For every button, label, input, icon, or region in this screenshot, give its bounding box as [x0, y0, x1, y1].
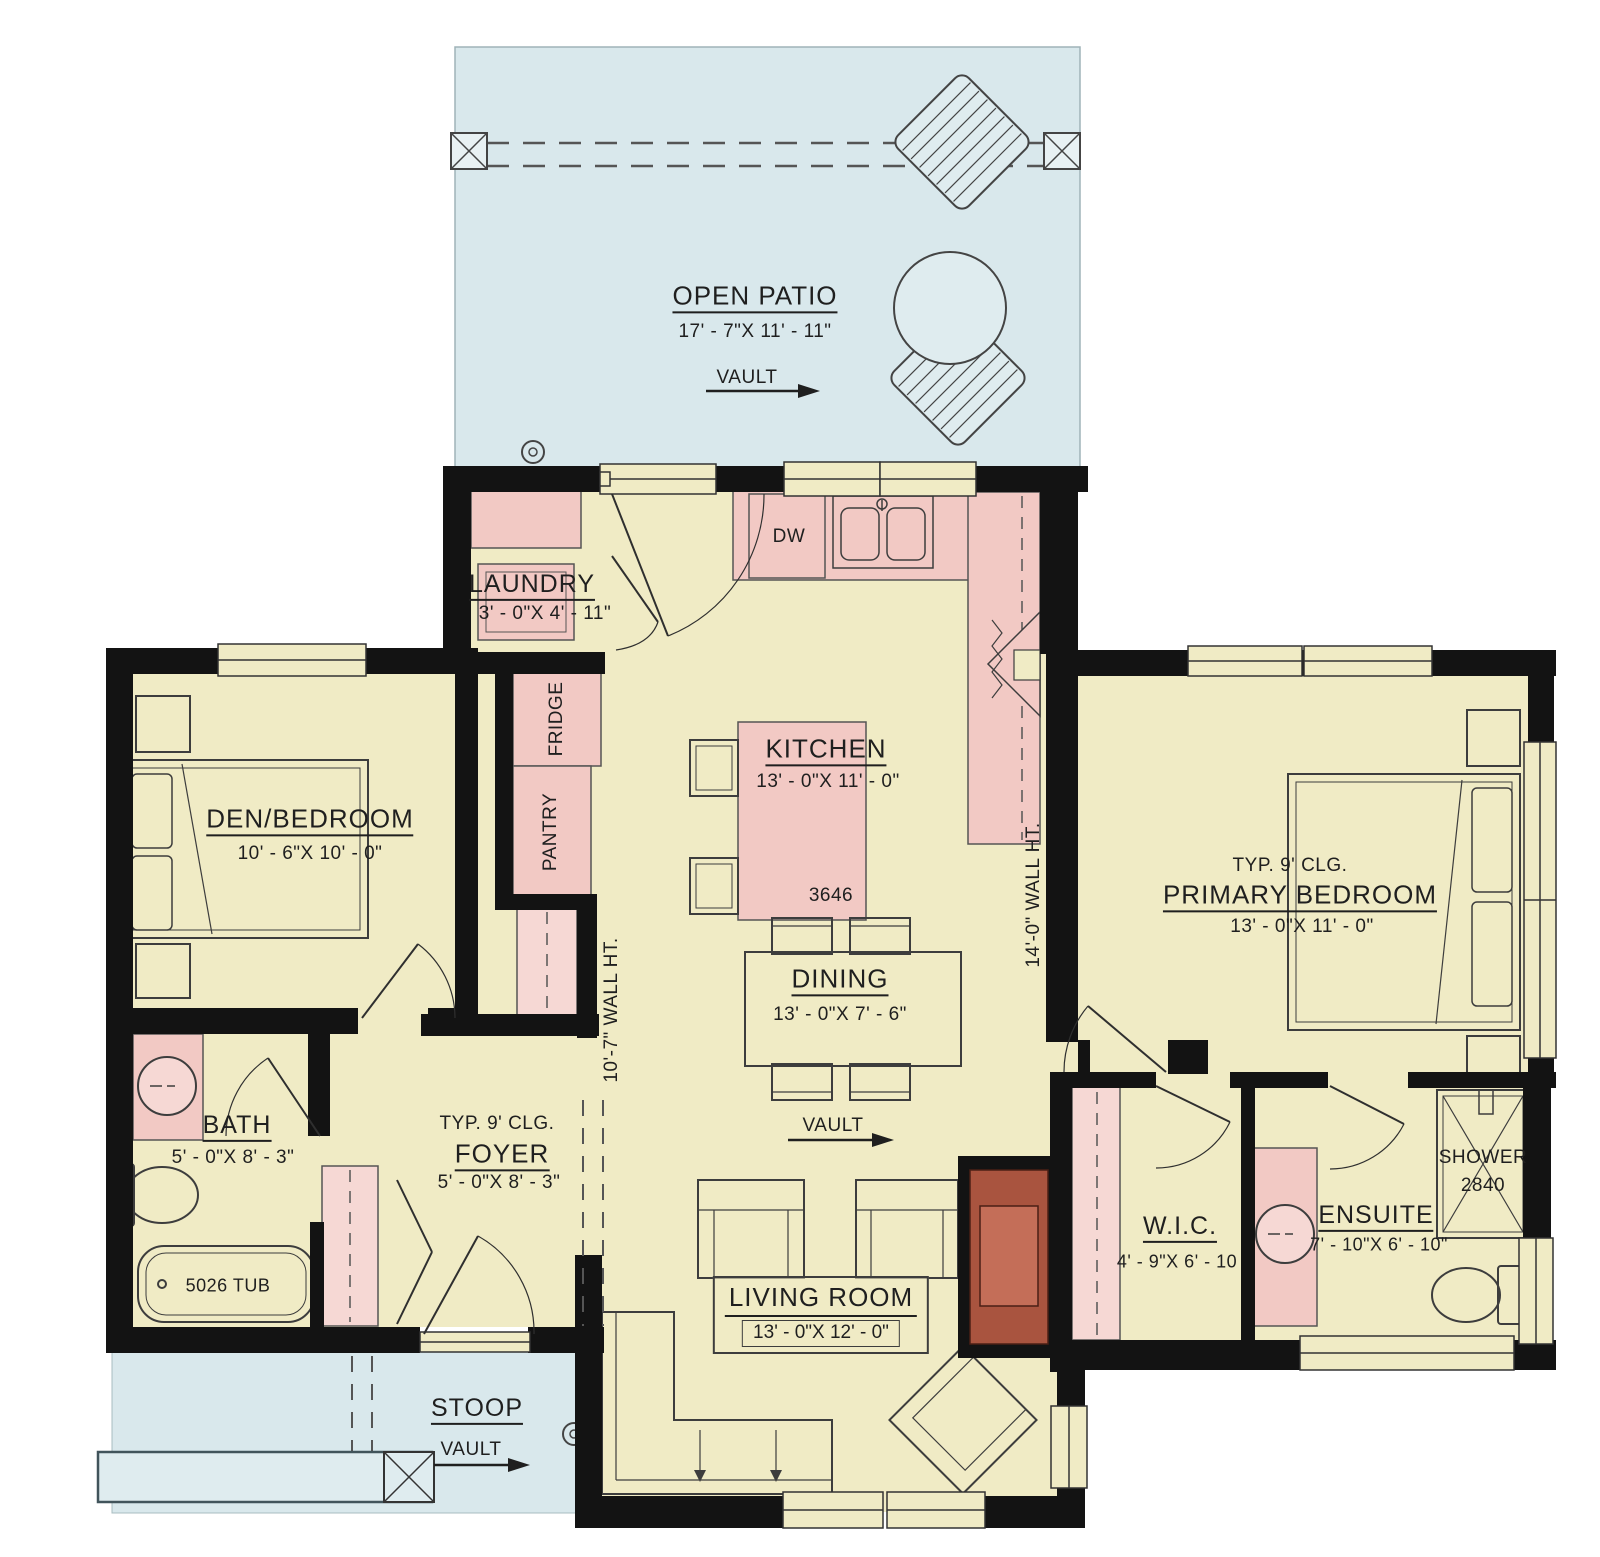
ensuite-vanity — [1253, 1148, 1317, 1326]
kitchen-title: KITCHEN — [765, 735, 886, 766]
foyer-ceiling: TYP. 9' CLG. — [440, 1114, 555, 1134]
wall-height-right: 14'-0" WALL HT. — [1024, 822, 1044, 967]
bath-title: BATH — [203, 1112, 272, 1142]
primary-dims: 13' - 0"X 11' - 0" — [1230, 917, 1373, 937]
window-icon — [783, 1492, 883, 1528]
ensuite-title: ENSUITE — [1318, 1202, 1433, 1232]
primary-title: PRIMARY BEDROOM — [1163, 881, 1437, 912]
stoop-title: STOOP — [431, 1395, 523, 1425]
patio-table-icon — [894, 252, 1006, 364]
living-dims: 13' - 0"X 12' - 0" — [742, 1320, 900, 1347]
stoop-beam — [98, 1452, 432, 1502]
den-title: DEN/BEDROOM — [206, 805, 413, 836]
stoop-area — [98, 1349, 585, 1513]
window-icon — [784, 462, 880, 496]
laundry-dims: 3' - 0"X 4' - 11" — [479, 604, 611, 624]
window-icon — [887, 1492, 985, 1528]
patio-post-right-icon — [1044, 133, 1080, 169]
window-icon — [1300, 1336, 1514, 1370]
wic-closet — [1072, 1087, 1120, 1340]
kitchen-dims: 13' - 0"X 11' - 0" — [756, 772, 899, 792]
living-title: LIVING ROOM — [725, 1282, 917, 1317]
primary-ceiling: TYP. 9' CLG. — [1233, 856, 1348, 876]
bath-vanity — [133, 1034, 203, 1140]
hall-closet — [517, 908, 577, 1020]
den-dims: 10' - 6"X 10' - 0" — [238, 844, 383, 864]
fireplace-icon — [958, 1156, 1058, 1358]
door-sill — [420, 1332, 530, 1352]
stoop-vault: VAULT — [441, 1440, 502, 1460]
window-icon — [1051, 1406, 1087, 1488]
wic-dims: 4' - 9"X 6' - 10 — [1117, 1253, 1237, 1272]
pantry-label: PANTRY — [541, 793, 561, 871]
patio-dims: 17' - 7"X 11' - 11" — [678, 322, 831, 342]
foyer-closet — [322, 1166, 378, 1326]
dining-dims: 13' - 0"X 7' - 6" — [773, 1005, 907, 1025]
stoop-post-icon — [384, 1452, 434, 1502]
living-room-label-box: LIVING ROOM 13' - 0"X 12' - 0" — [713, 1276, 929, 1354]
fridge-label: FRIDGE — [547, 682, 567, 757]
window-icon — [1519, 1238, 1553, 1344]
laundry-counter — [471, 490, 581, 548]
window-icon — [1188, 646, 1302, 676]
laundry-title: LAUNDRY — [469, 571, 595, 601]
patio-title: OPEN PATIO — [672, 282, 837, 313]
patio-vault: VAULT — [717, 368, 778, 388]
tub-label: 5026 TUB — [186, 1277, 271, 1296]
wall-height-left: 10'-7" WALL HT. — [602, 937, 622, 1082]
shower-size: 2840 — [1461, 1176, 1505, 1196]
dining-title: DINING — [792, 965, 889, 996]
dishwasher-label: DW — [773, 527, 806, 547]
kitchen-sink-icon — [833, 496, 933, 568]
ensuite-dims: 7' - 10"X 6' - 10" — [1310, 1236, 1448, 1255]
dining-vault: VAULT — [803, 1116, 864, 1136]
foyer-title: FOYER — [455, 1140, 550, 1171]
patio-post-left-icon — [451, 133, 487, 169]
window-icon — [1524, 742, 1556, 1058]
window-icon — [600, 464, 716, 494]
wic-title: W.I.C. — [1143, 1213, 1217, 1243]
floor-plan: OPEN PATIO 17' - 7"X 11' - 11" VAULT LAU… — [0, 0, 1600, 1557]
shower-label: SHOWER — [1439, 1148, 1528, 1168]
window-icon — [1304, 646, 1432, 676]
patio-area — [451, 47, 1080, 468]
window-icon — [880, 462, 976, 496]
foyer-dims: 5' - 0"X 8' - 3" — [438, 1173, 561, 1193]
window-icon — [218, 644, 366, 676]
bath-dims: 5' - 0"X 8' - 3" — [172, 1148, 295, 1168]
island-size: 3646 — [809, 886, 853, 906]
